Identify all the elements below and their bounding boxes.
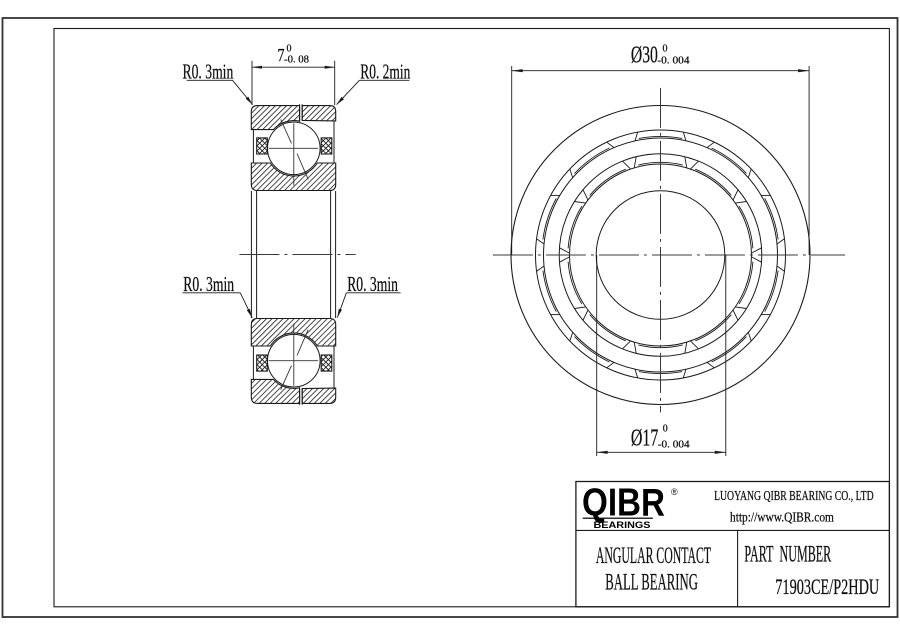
svg-text:http://www.QIBR.com: http://www.QIBR.com — [730, 511, 834, 526]
svg-text:®: ® — [671, 487, 678, 497]
svg-text:0: 0 — [287, 44, 292, 55]
svg-text:71903CE/P2HDU: 71903CE/P2HDU — [775, 574, 879, 599]
svg-text:0: 0 — [663, 43, 668, 54]
svg-text:R0. 3min: R0. 3min — [183, 272, 234, 296]
svg-text:R0. 3min: R0. 3min — [183, 60, 234, 84]
svg-text:0: 0 — [663, 424, 668, 435]
svg-text:ANGULAR CONTACT: ANGULAR CONTACT — [596, 543, 711, 568]
svg-text:BALL BEARING: BALL BEARING — [605, 570, 698, 595]
svg-text:BEARINGS: BEARINGS — [594, 520, 651, 531]
svg-text:Ø30: Ø30 — [631, 43, 658, 69]
svg-text:LUOYANG QIBR BEARING CO., LTD: LUOYANG QIBR BEARING CO., LTD — [714, 489, 874, 504]
svg-text:-0. 004: -0. 004 — [658, 440, 690, 451]
svg-text:R0. 2min: R0. 2min — [360, 60, 410, 84]
svg-text:R0. 3min: R0. 3min — [347, 272, 398, 296]
svg-text:PART NUMBER: PART NUMBER — [744, 542, 831, 567]
svg-text:-0. 004: -0. 004 — [657, 55, 689, 66]
svg-text:-0. 08: -0. 08 — [284, 55, 309, 66]
svg-text:Ø17: Ø17 — [631, 426, 659, 452]
